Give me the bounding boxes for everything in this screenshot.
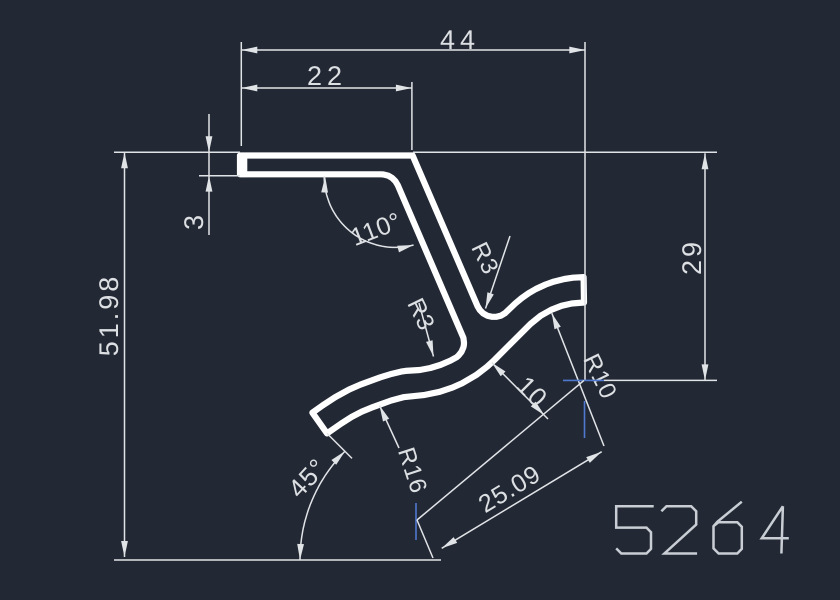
svg-text:51.98: 51.98	[94, 274, 124, 357]
svg-text:44: 44	[440, 25, 480, 55]
svg-text:3: 3	[179, 212, 209, 230]
svg-text:29: 29	[677, 239, 707, 275]
svg-text:22: 22	[307, 61, 347, 91]
